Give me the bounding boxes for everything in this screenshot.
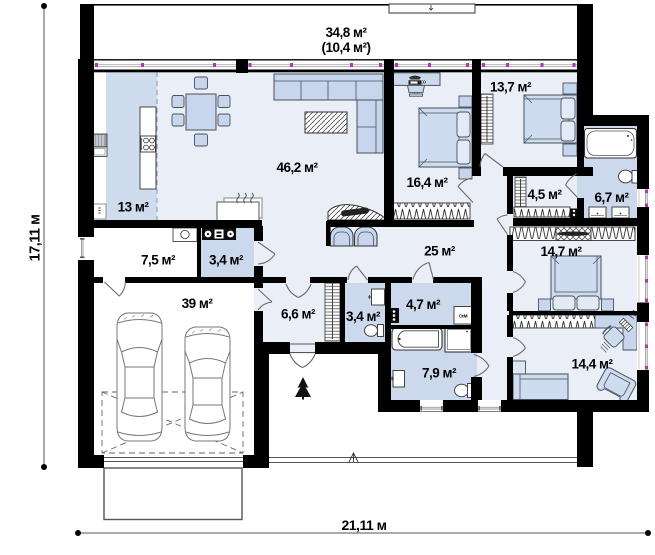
svg-text:7,9 м²: 7,9 м² (422, 366, 457, 381)
svg-text:14,4 м²: 14,4 м² (571, 357, 613, 372)
svg-text:6,6 м²: 6,6 м² (281, 307, 316, 322)
svg-text:21,11 м: 21,11 м (341, 517, 386, 533)
svg-text:6,7 м²: 6,7 м² (595, 190, 630, 205)
svg-text:39 м²: 39 м² (182, 296, 214, 311)
svg-text:7,5 м²: 7,5 м² (141, 253, 176, 268)
svg-text:3,4 м²: 3,4 м² (346, 309, 381, 324)
svg-text:4,5 м²: 4,5 м² (528, 187, 563, 202)
svg-text:17,11 м: 17,11 м (28, 215, 44, 262)
svg-text:25 м²: 25 м² (424, 244, 456, 259)
svg-text:4,7 м²: 4,7 м² (406, 297, 441, 312)
svg-text:16,4 м²: 16,4 м² (406, 175, 448, 190)
svg-text:13,7 м²: 13,7 м² (490, 80, 532, 95)
svg-text:Ст.М: Ст.М (459, 314, 468, 319)
svg-text:13 м²: 13 м² (118, 200, 150, 215)
svg-text:34,8 м²: 34,8 м² (325, 25, 367, 40)
svg-text:14,7 м²: 14,7 м² (540, 244, 582, 259)
svg-text:(10,4 м²): (10,4 м²) (322, 40, 371, 55)
svg-text:46,2 м²: 46,2 м² (276, 160, 318, 175)
svg-text:3,4 м²: 3,4 м² (209, 253, 244, 268)
